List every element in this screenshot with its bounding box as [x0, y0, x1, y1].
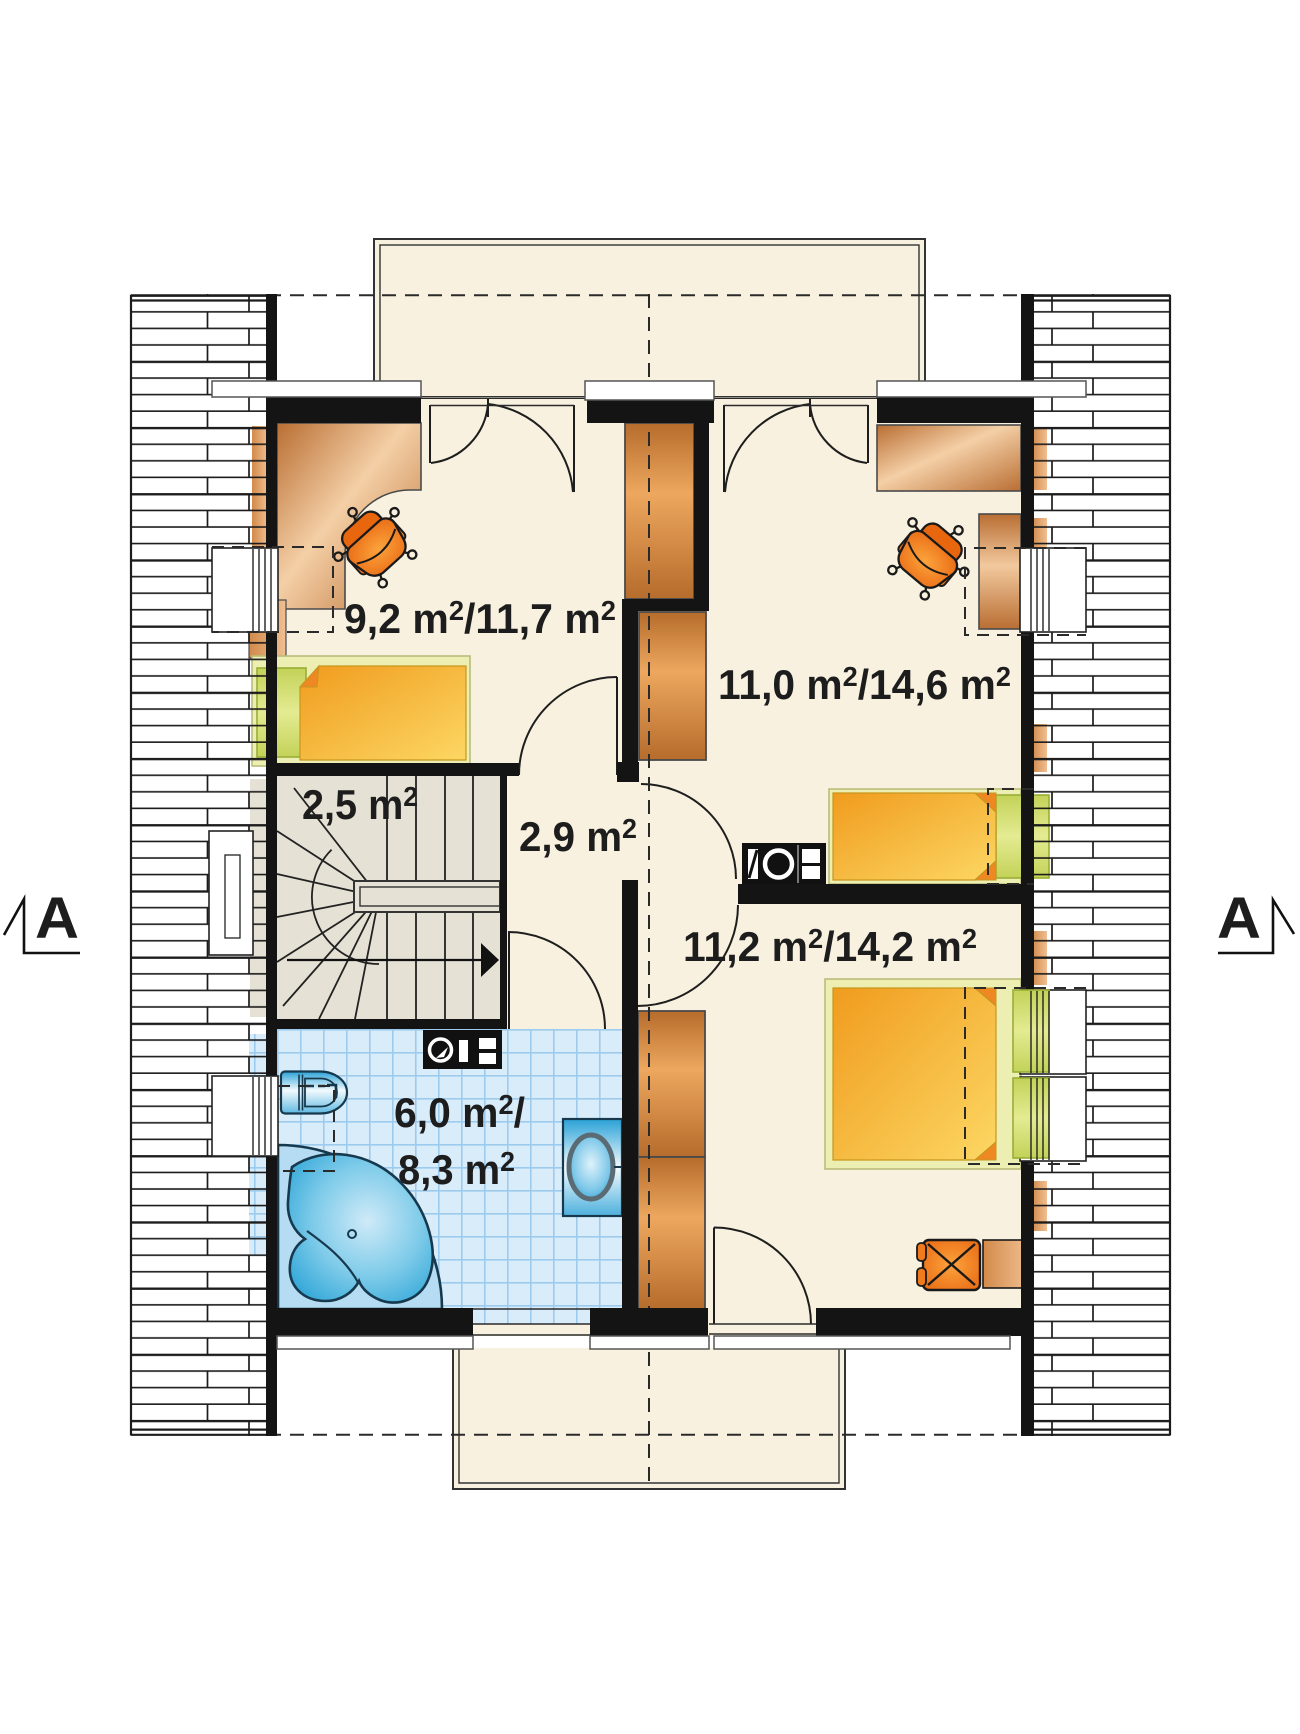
svg-text:2,9 m2: 2,9 m2 — [519, 813, 637, 860]
svg-text:2,5 m2: 2,5 m2 — [302, 781, 418, 828]
svg-text:11,2 m2/14,2 m2: 11,2 m2/14,2 m2 — [683, 923, 977, 970]
svg-text:A: A — [35, 886, 79, 951]
svg-text:8,3 m2: 8,3 m2 — [398, 1146, 515, 1193]
svg-text:11,0 m2/14,6 m2: 11,0 m2/14,6 m2 — [718, 661, 1011, 708]
svg-text:9,2 m2/11,7 m2: 9,2 m2/11,7 m2 — [344, 595, 616, 642]
svg-text:A: A — [1217, 886, 1261, 951]
